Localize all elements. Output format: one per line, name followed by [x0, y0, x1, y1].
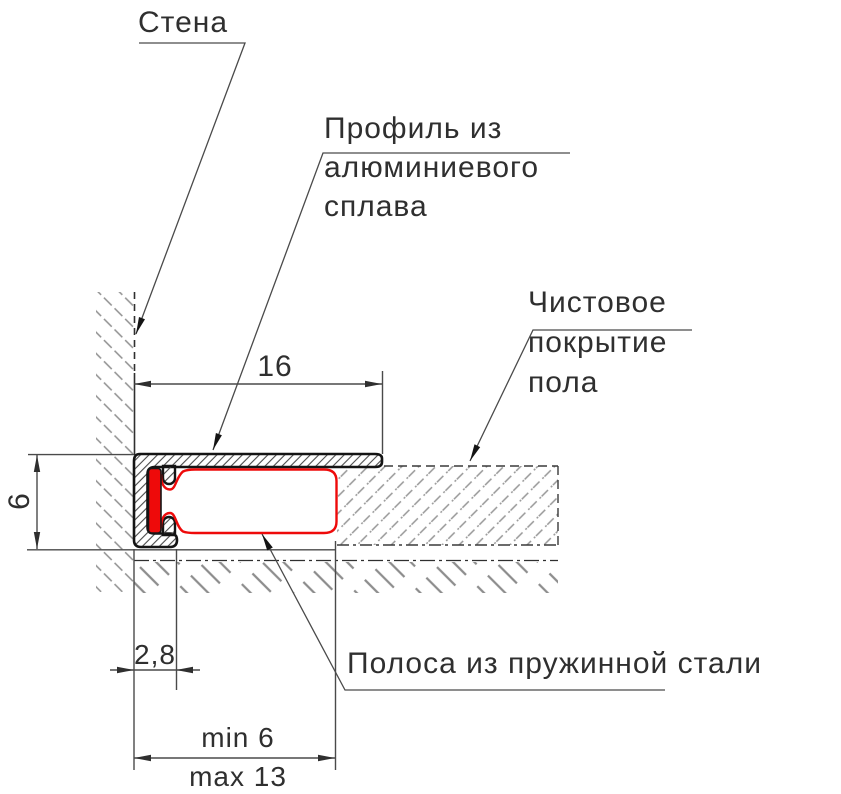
floor-finish-label: Чистовое покрытие пола	[528, 283, 667, 403]
technical-drawing-canvas: Стена Профиль из алюминиевого сплава Чис…	[0, 0, 841, 794]
dimension-text-2-8: 2,8	[134, 639, 176, 671]
profile-top-bump	[163, 466, 175, 484]
profile-bottom-bump	[163, 517, 175, 535]
wall-label: Стена	[138, 3, 228, 42]
dimension-text-16: 16	[257, 350, 292, 384]
steel-strip-label: Полоса из пружинной стали	[347, 644, 762, 683]
dimension-text-max: max 13	[189, 761, 287, 793]
spring-steel-strip	[149, 469, 337, 534]
wall-section-hatch	[96, 292, 135, 592]
floor-finish-label-line1: Чистовое	[528, 283, 667, 323]
dimension-text-6: 6	[3, 492, 37, 510]
dimension-text-min: min 6	[201, 722, 274, 754]
floor-finish-label-line3: пола	[528, 363, 667, 403]
leader-wall	[136, 43, 245, 334]
floor-covering-section	[337, 466, 558, 545]
profile-label: Профиль из алюминиевого сплава	[324, 109, 539, 226]
profile-label-line2: алюминиевого	[324, 148, 539, 187]
profile-label-line1: Профиль из	[324, 109, 539, 148]
profile-label-line3: сплава	[324, 187, 539, 226]
floor-finish-label-line2: покрытие	[528, 323, 667, 363]
